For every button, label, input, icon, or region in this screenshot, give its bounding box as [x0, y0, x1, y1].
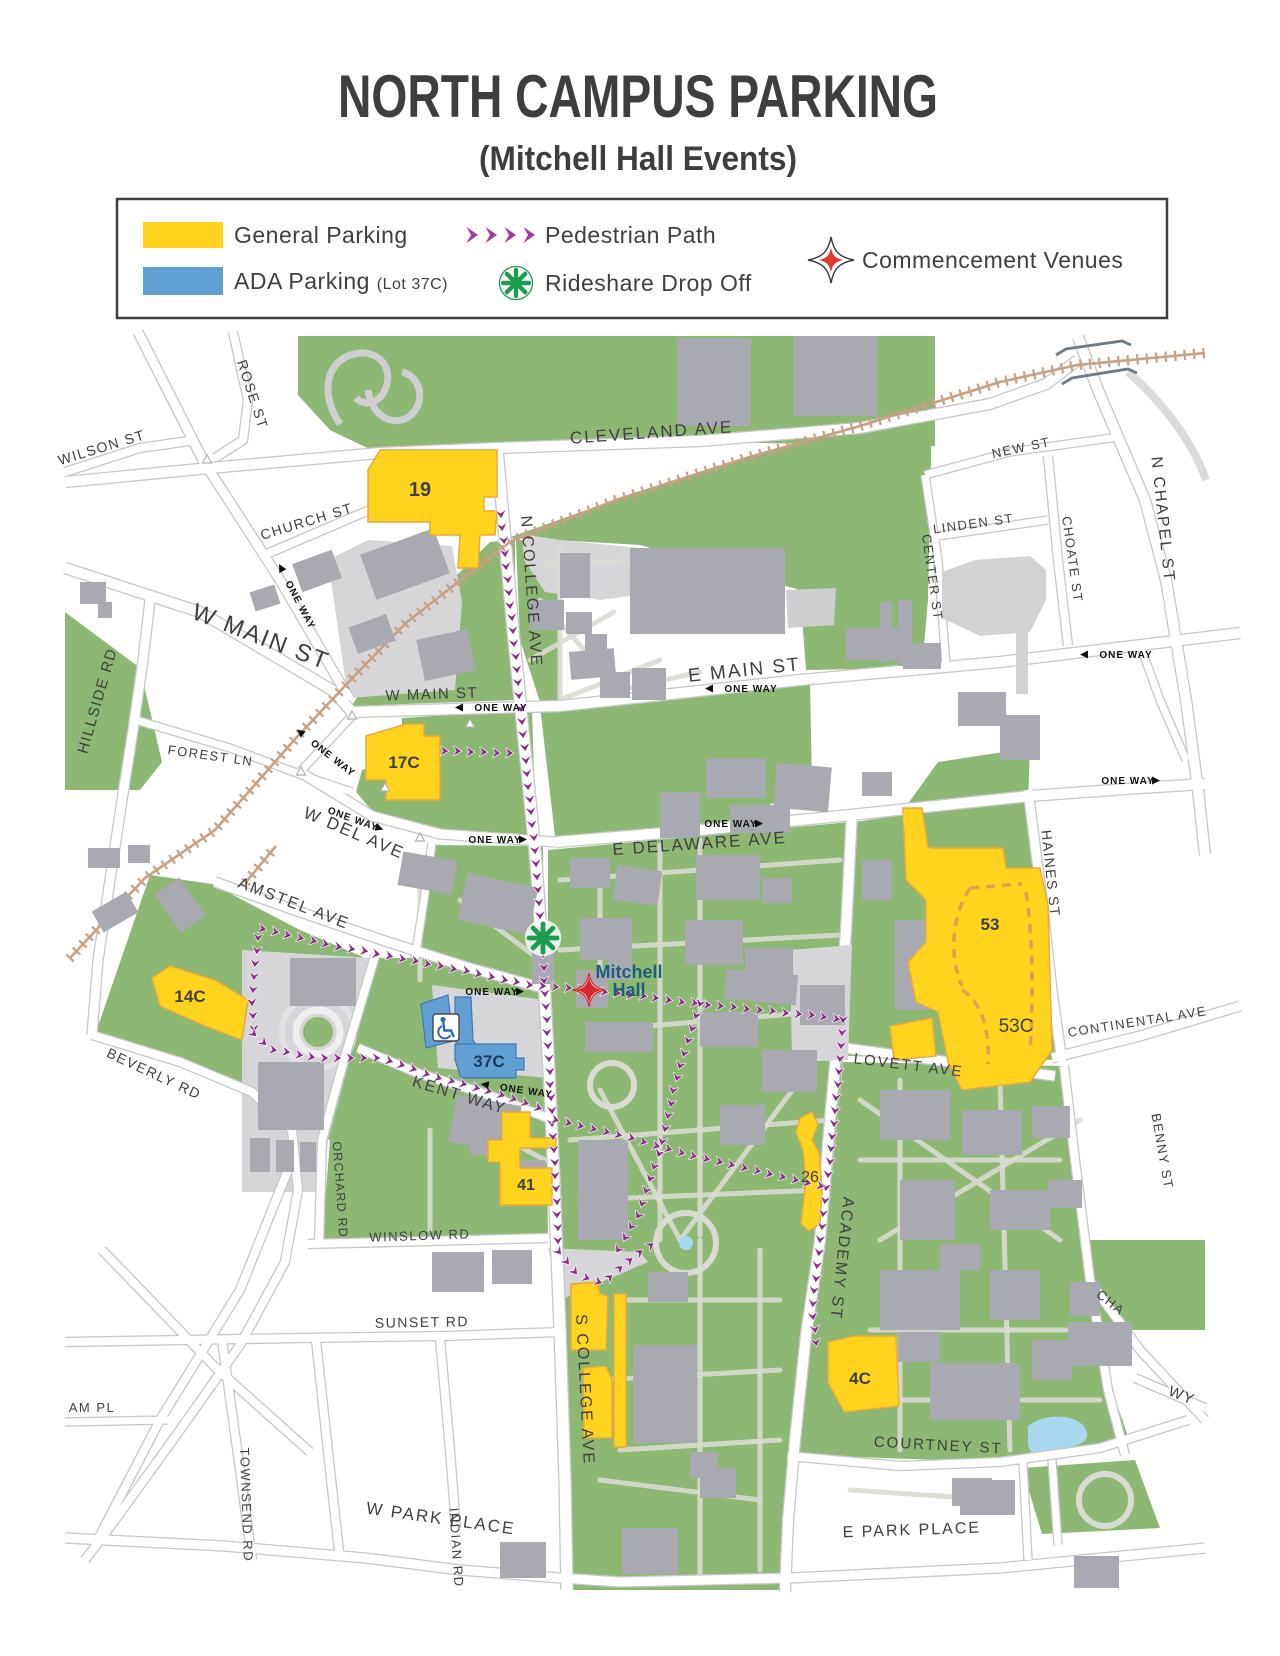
- svg-text:37C: 37C: [473, 1052, 504, 1071]
- svg-text:ONE WAY: ONE WAY: [465, 987, 518, 998]
- svg-text:ONE WAY: ONE WAY: [474, 703, 527, 714]
- svg-text:SUNSET RD: SUNSET RD: [375, 1313, 469, 1331]
- svg-text:(Mitchell Hall Events): (Mitchell Hall Events): [479, 140, 797, 178]
- svg-text:53: 53: [981, 915, 1000, 934]
- svg-text:Rideshare Drop Off: Rideshare Drop Off: [545, 270, 752, 296]
- svg-text:53C: 53C: [999, 1016, 1034, 1037]
- svg-text:ONE WAY: ONE WAY: [724, 684, 777, 695]
- svg-text:ONE WAY: ONE WAY: [704, 819, 757, 830]
- svg-text:Mitchell: Mitchell: [595, 962, 662, 982]
- svg-text:19: 19: [409, 479, 431, 501]
- svg-text:Commencement Venues: Commencement Venues: [862, 247, 1123, 273]
- svg-text:ONE WAY: ONE WAY: [1099, 650, 1152, 661]
- svg-text:26: 26: [801, 1169, 819, 1186]
- svg-text:14C: 14C: [174, 987, 205, 1006]
- svg-text:ONE WAY: ONE WAY: [468, 835, 521, 846]
- svg-text:ONE WAY: ONE WAY: [1101, 776, 1154, 787]
- svg-text:Pedestrian Path: Pedestrian Path: [545, 222, 716, 248]
- svg-text:4C: 4C: [849, 1369, 871, 1388]
- svg-text:17C: 17C: [388, 753, 419, 772]
- svg-text:General Parking: General Parking: [234, 222, 408, 248]
- svg-text:W MAIN ST: W MAIN ST: [385, 684, 478, 704]
- svg-text:NORTH CAMPUS PARKING: NORTH CAMPUS PARKING: [338, 63, 938, 130]
- svg-text:AM PL: AM PL: [69, 1400, 116, 1415]
- svg-text:41: 41: [517, 1177, 535, 1194]
- svg-text:Hall: Hall: [612, 980, 645, 1000]
